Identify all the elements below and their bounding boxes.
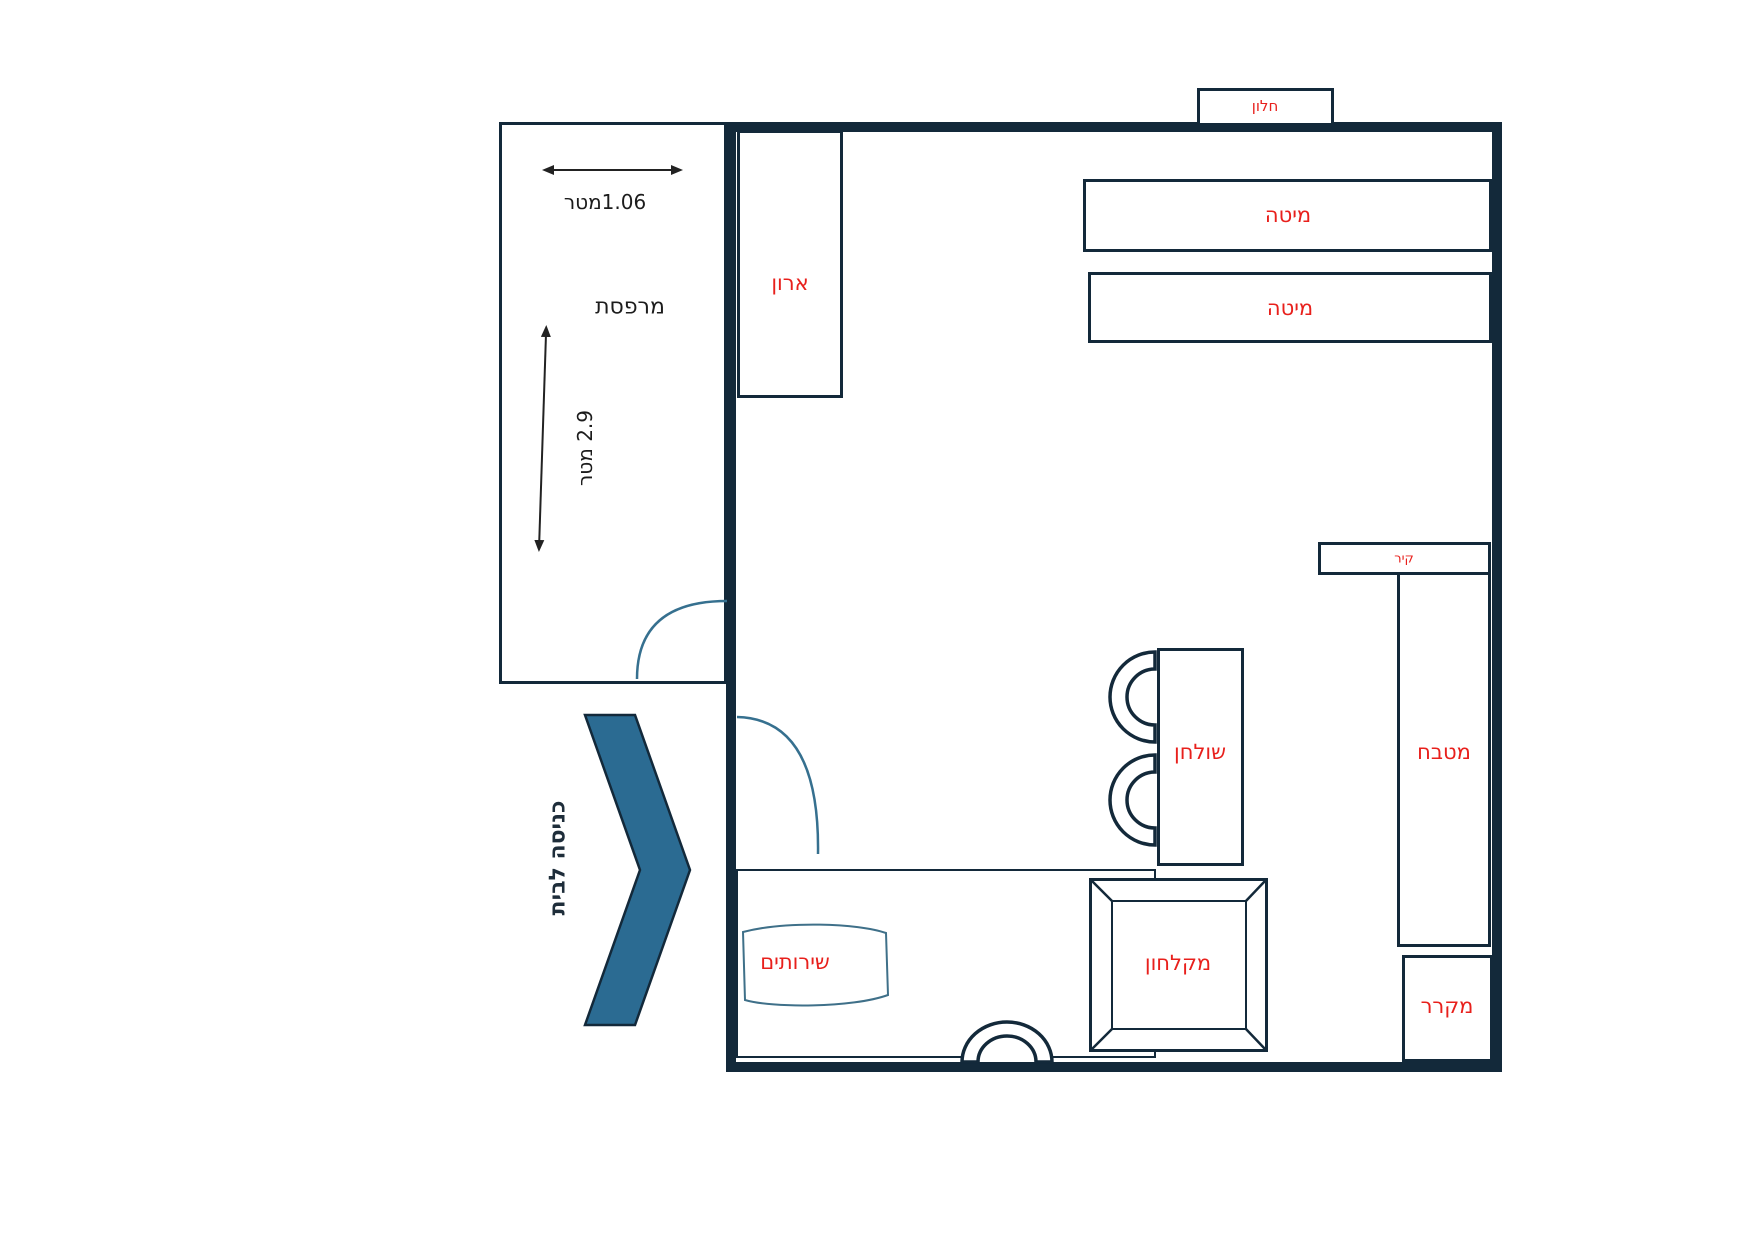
kitchen-label: מטבח bbox=[1417, 740, 1471, 764]
entrance-door-arc bbox=[737, 717, 818, 854]
toilet-label: שירותים bbox=[760, 950, 830, 974]
wall-unit-label: קיר bbox=[1394, 552, 1413, 567]
bed1-label: מיטה bbox=[1265, 203, 1311, 227]
chair-bottom bbox=[1110, 755, 1155, 845]
balcony-label: מרפסת bbox=[595, 295, 665, 320]
wall-bottom bbox=[726, 1062, 1502, 1072]
floor-plan-canvas: חלון מיטה מיטה ארון מרפסת 1.06מטר 2.9 מט… bbox=[0, 0, 1754, 1240]
closet-box bbox=[737, 130, 843, 398]
wall-left bbox=[726, 122, 736, 1072]
balcony-width-label: 1.06מטר bbox=[564, 190, 646, 214]
balcony-height-label: 2.9 מטר bbox=[573, 410, 597, 486]
window-label: חלון bbox=[1252, 97, 1279, 115]
entrance-chevron-arrow bbox=[585, 715, 690, 1025]
shower-label: מקלחון bbox=[1145, 951, 1211, 975]
closet-label: ארון bbox=[771, 271, 808, 295]
chair-top bbox=[1110, 652, 1155, 742]
fridge-label: מקרר bbox=[1421, 994, 1474, 1018]
table-label: שולחן bbox=[1174, 740, 1226, 764]
entrance-label: כניסה לבית bbox=[546, 801, 571, 916]
wall-right bbox=[1492, 122, 1502, 1072]
bed2-label: מיטה bbox=[1267, 296, 1313, 320]
